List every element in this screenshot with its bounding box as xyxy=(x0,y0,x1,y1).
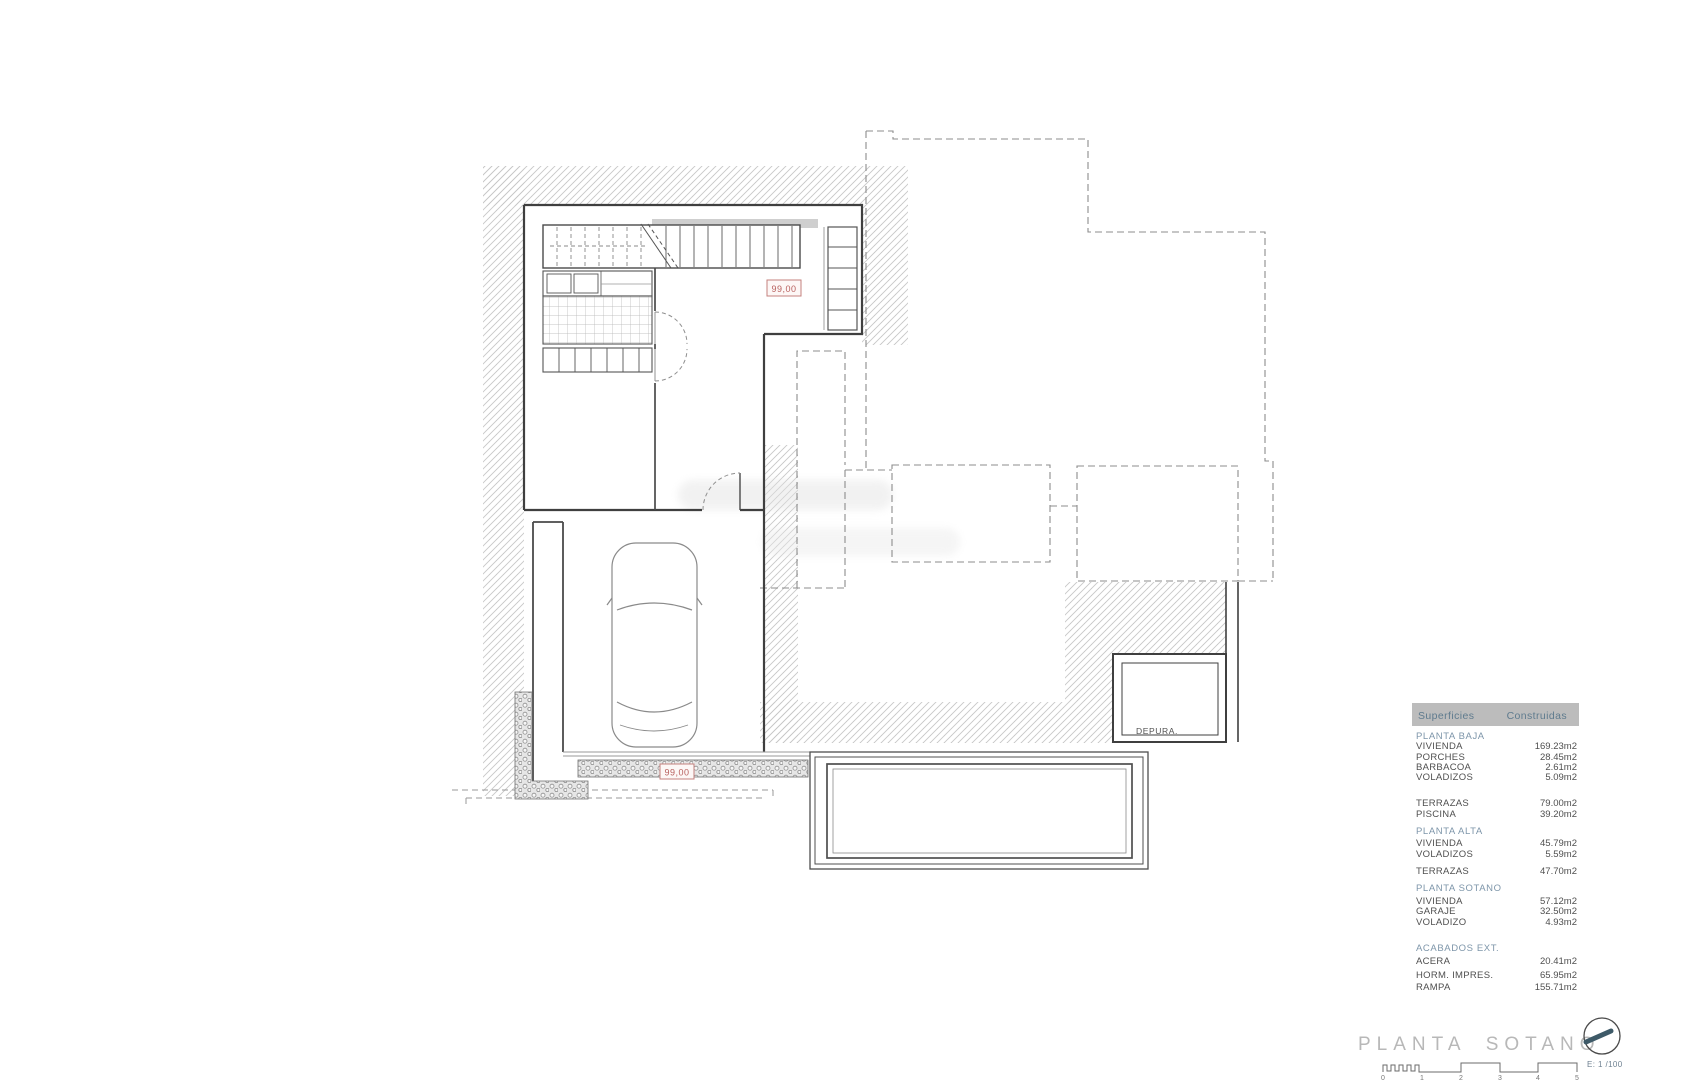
svg-text:4: 4 xyxy=(1536,1075,1540,1080)
table-row: TERRAZAS xyxy=(1416,866,1469,877)
table-row: GARAJE xyxy=(1416,906,1456,917)
light-well xyxy=(533,522,563,782)
table-row: TERRAZAS xyxy=(1416,798,1469,809)
car-mirror xyxy=(607,598,612,605)
areas-table: Superficies Construidas PLANTA BAJA VIVI… xyxy=(1412,703,1579,993)
svg-text:169.23m2: 169.23m2 xyxy=(1535,741,1577,752)
svg-text:3: 3 xyxy=(1498,1075,1502,1080)
svg-text:1: 1 xyxy=(1420,1075,1424,1080)
svg-text:5.09m2: 5.09m2 xyxy=(1545,772,1577,783)
svg-text:155.71m2: 155.71m2 xyxy=(1535,982,1577,993)
drawing-sheet: DEPURA. 99,00 99,00 Superficies Construi… xyxy=(0,0,1700,1080)
watermark-blob xyxy=(678,480,960,556)
door-arc xyxy=(655,312,687,344)
table-row: VIVIENDA xyxy=(1416,838,1463,849)
scale-bar xyxy=(1383,1063,1577,1072)
car xyxy=(607,543,702,747)
table-header-col2: Construidas xyxy=(1507,710,1567,722)
table-row: PISCINA xyxy=(1416,809,1456,820)
svg-text:99,00: 99,00 xyxy=(664,768,689,778)
scale-ratio-label: E: 1 /100 xyxy=(1587,1060,1623,1069)
table-row: HORM. IMPRES. xyxy=(1416,970,1493,981)
svg-text:20.41m2: 20.41m2 xyxy=(1540,956,1577,967)
pool xyxy=(810,752,1148,869)
table-row: VIVIENDA xyxy=(1416,741,1463,752)
car-mirror xyxy=(697,598,702,605)
floor-plan-canvas: DEPURA. 99,00 99,00 Superficies Construi… xyxy=(0,0,1700,1080)
table-row: ACABADOS EXT. xyxy=(1416,943,1499,954)
table-row: PLANTA SOTANO xyxy=(1416,883,1502,894)
wardrobe-row xyxy=(543,348,652,372)
landing-shelves xyxy=(824,227,857,330)
svg-text:4.93m2: 4.93m2 xyxy=(1545,917,1577,928)
table-row: VOLADIZO xyxy=(1416,917,1466,928)
level-label-upper: 99,00 xyxy=(767,280,801,296)
plan-title: PLANTA SOTANO xyxy=(1358,1034,1601,1055)
table-row: RAMPA xyxy=(1416,982,1451,993)
staircase xyxy=(543,219,818,268)
svg-text:5: 5 xyxy=(1575,1075,1579,1080)
bathroom-tiles xyxy=(543,296,652,344)
scale-ticks: 0 1 2 3 4 5 xyxy=(1381,1075,1579,1080)
table-header-col1: Superficies xyxy=(1418,710,1474,722)
svg-text:0: 0 xyxy=(1381,1075,1385,1080)
table-row: VOLADIZOS xyxy=(1416,849,1473,860)
svg-text:45.79m2: 45.79m2 xyxy=(1540,838,1577,849)
closet-upper xyxy=(543,271,652,296)
svg-text:32.50m2: 32.50m2 xyxy=(1540,906,1577,917)
garage-threshold xyxy=(563,752,810,756)
svg-text:5.59m2: 5.59m2 xyxy=(1545,849,1577,860)
door-arc xyxy=(655,349,687,381)
svg-text:99,00: 99,00 xyxy=(771,284,796,294)
svg-text:65.95m2: 65.95m2 xyxy=(1540,970,1577,981)
svg-text:47.70m2: 47.70m2 xyxy=(1540,866,1577,877)
depura-label: DEPURA. xyxy=(1136,726,1178,736)
table-row: PLANTA ALTA xyxy=(1416,826,1483,837)
level-label-lower: 99,00 xyxy=(660,764,694,779)
svg-text:79.00m2: 79.00m2 xyxy=(1540,798,1577,809)
svg-text:39.20m2: 39.20m2 xyxy=(1540,809,1577,820)
table-row: VOLADIZOS xyxy=(1416,772,1473,783)
table-row: ACERA xyxy=(1416,956,1451,967)
svg-text:2: 2 xyxy=(1459,1075,1463,1080)
table-rows: PLANTA BAJA VIVIENDA 169.23m2 PORCHES 28… xyxy=(1416,731,1577,993)
